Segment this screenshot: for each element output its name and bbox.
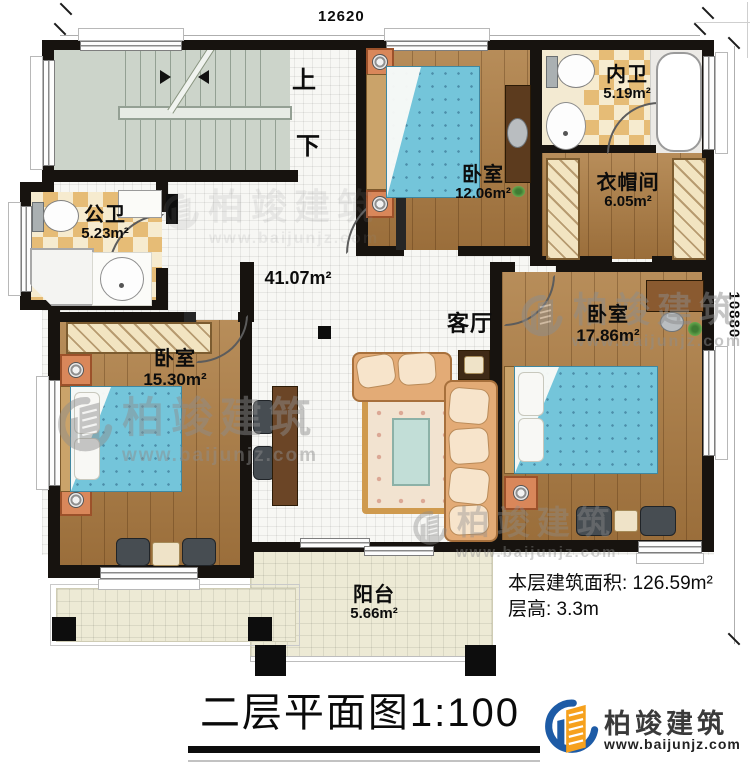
- column: [465, 645, 496, 676]
- wall: [156, 268, 168, 310]
- living-room-area-label: 41.07m²: [258, 268, 338, 288]
- room-name: 卧室: [558, 304, 658, 326]
- stairs-direction-arrow: [198, 70, 209, 84]
- watermark-url: www.baijunjz.com: [209, 230, 379, 248]
- window-sill: [98, 579, 200, 590]
- room-area: 41.07m²: [258, 268, 338, 288]
- watermark-name: 柏竣建筑: [457, 496, 617, 544]
- room-label-inner-bath: 内卫 5.19m²: [587, 64, 667, 103]
- watermark-name: 柏竣建筑: [208, 178, 380, 230]
- window: [638, 541, 702, 553]
- window-sill: [36, 376, 49, 490]
- sofa-cushion: [397, 352, 437, 387]
- brand-url: www.baijunjz.com: [604, 736, 741, 752]
- room-label-balcony: 阳台 5.66m²: [324, 584, 424, 623]
- border-frame-line: [694, 22, 750, 23]
- floor-area-note: 本层建筑面积: 126.59m²: [508, 568, 713, 595]
- dimension-tick: [54, 23, 67, 36]
- sliding-door: [300, 538, 370, 548]
- wall: [48, 312, 185, 322]
- chair: [116, 538, 150, 566]
- chair: [182, 538, 216, 566]
- pillow: [518, 418, 544, 462]
- room-name: 公卫: [64, 204, 146, 226]
- room-area: 15.30m²: [125, 370, 225, 389]
- door-leaf: [396, 194, 406, 250]
- watermark-url: www.baijunjz.com: [456, 544, 617, 561]
- page-title: 二层平面图1:100: [140, 680, 580, 738]
- dimension-tick: [60, 3, 73, 16]
- room-label-bedroom-top: 卧室 12.06m²: [433, 164, 533, 203]
- pillow: [518, 372, 544, 416]
- sofa-cushion: [355, 352, 398, 390]
- stairs-down-label: 下: [296, 126, 320, 161]
- window-sill: [8, 202, 21, 296]
- rug-center: [392, 418, 430, 486]
- sofa-cushion: [448, 427, 490, 466]
- room-label-bedroom-left: 卧室 15.30m²: [125, 348, 225, 389]
- watermark-logo-icon: [412, 508, 448, 550]
- stair-treads-lower: [125, 118, 290, 175]
- bed-sheet-fold: [387, 67, 421, 197]
- room-name: 内卫: [587, 64, 667, 86]
- sink: [100, 257, 144, 301]
- title-underline: [188, 746, 540, 753]
- watermark-logo-icon: [162, 191, 200, 235]
- window-sill: [715, 52, 728, 154]
- bed-headboard: [366, 74, 388, 190]
- room-label-cloakroom: 衣帽间 6.05m²: [578, 172, 678, 211]
- window: [386, 41, 488, 51]
- column: [255, 645, 286, 676]
- brand-logo-icon: [543, 696, 600, 760]
- stairs-direction-arrow: [160, 70, 171, 84]
- window: [100, 567, 198, 579]
- window: [80, 41, 182, 51]
- dimension-top: 12620: [318, 8, 365, 25]
- dimension-tick: [702, 7, 715, 20]
- window: [703, 350, 715, 456]
- room-name: 衣帽间: [578, 172, 678, 194]
- side-table: [152, 542, 180, 566]
- column: [318, 326, 331, 339]
- watermark: 柏竣建筑 www.baijunjz.com: [412, 496, 617, 561]
- watermark-url: www.baijunjz.com: [122, 445, 318, 467]
- watermark-logo-icon: [56, 393, 114, 459]
- room-area: 6.05m²: [578, 194, 678, 211]
- stair-railing: [118, 106, 292, 120]
- wall: [490, 262, 515, 272]
- window-sill: [30, 56, 43, 170]
- window-sill: [384, 28, 490, 41]
- watermark-name: 柏竣建筑: [122, 384, 318, 445]
- room-label-public-bath: 公卫 5.23m²: [64, 204, 146, 243]
- window-sill: [78, 28, 184, 41]
- chair: [640, 506, 676, 536]
- column: [52, 617, 76, 641]
- room-area: 5.23m²: [64, 226, 146, 243]
- window: [43, 60, 55, 166]
- dimension-tick: [694, 23, 707, 36]
- room-name: 卧室: [125, 348, 225, 370]
- room-area: 5.66m²: [324, 606, 424, 623]
- watermark: 柏竣建筑 www.baijunjz.com: [56, 384, 318, 467]
- room-area: 5.19m²: [587, 86, 667, 103]
- room-area: 17.86m²: [558, 326, 658, 345]
- room-name: 卧室: [433, 164, 533, 186]
- side-table: [614, 510, 638, 532]
- floor-height-note: 层高: 3.3m: [508, 594, 599, 621]
- room-name: 客厅: [440, 312, 500, 337]
- window: [703, 56, 715, 150]
- border-frame-line: [747, 2, 748, 58]
- sink: [546, 102, 586, 150]
- wall: [556, 262, 714, 272]
- title-underline-thin: [188, 760, 540, 762]
- balcony-railing: [250, 656, 493, 662]
- nightstand: [60, 354, 92, 386]
- living-room-name-label: 客厅: [440, 312, 500, 337]
- room-name: 阳台: [324, 584, 424, 606]
- watermark: 柏竣建筑 www.baijunjz.com: [162, 178, 380, 248]
- wall: [240, 542, 254, 578]
- sofa-cushion: [448, 386, 491, 425]
- room-label-bedroom-right: 卧室 17.86m²: [558, 304, 658, 345]
- room-area: 12.06m²: [433, 186, 533, 203]
- mirror: [507, 118, 528, 148]
- floor-plan-page: 12620 10880 上 下: [0, 0, 750, 773]
- wall: [240, 262, 254, 314]
- window-sill: [636, 553, 704, 564]
- stairs-up-label: 上: [292, 60, 316, 95]
- window-sill: [715, 346, 728, 460]
- column: [248, 617, 272, 641]
- wardrobe: [546, 158, 580, 260]
- end-table-top: [464, 356, 484, 374]
